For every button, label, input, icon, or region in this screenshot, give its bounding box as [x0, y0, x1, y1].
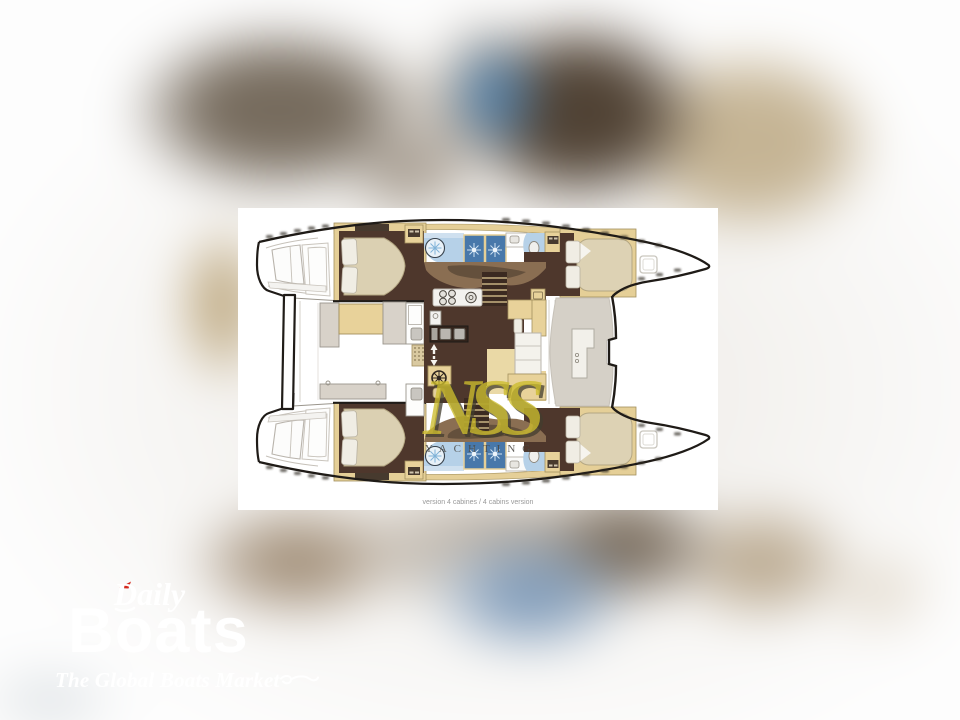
svg-text:The Global Boats Market: The Global Boats Market: [55, 668, 280, 692]
svg-text:Boats: Boats: [68, 596, 249, 666]
